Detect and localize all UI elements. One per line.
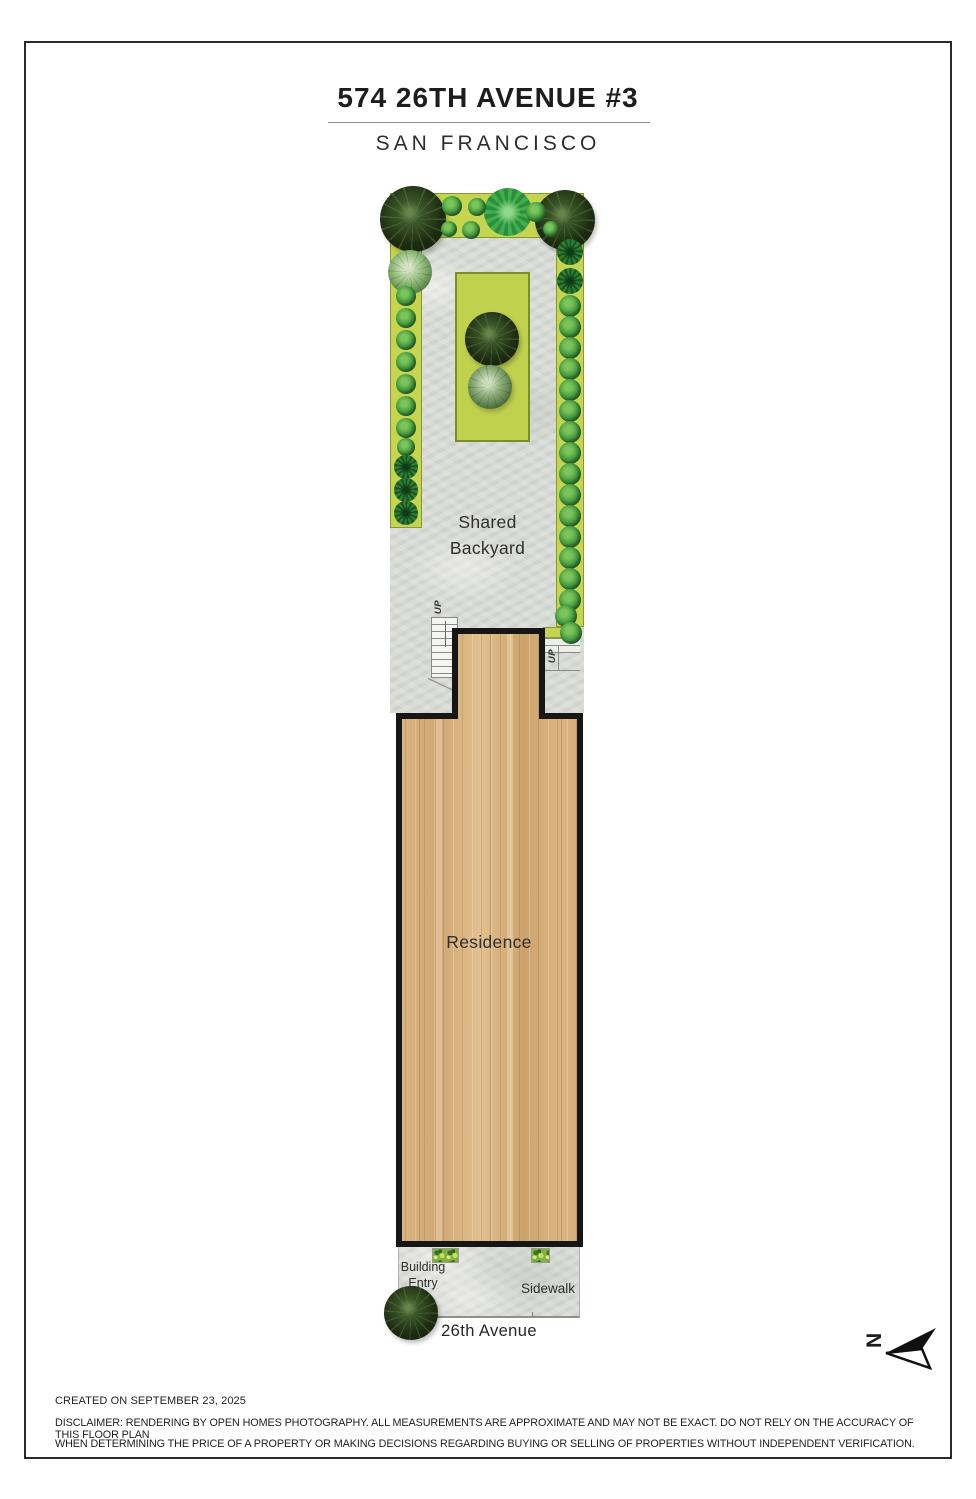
shrub-icon bbox=[396, 352, 416, 372]
shrub-icon bbox=[462, 221, 480, 239]
palm-icon bbox=[394, 478, 418, 502]
shrub-icon bbox=[397, 438, 415, 456]
backyard-label-line2: Backyard bbox=[415, 535, 560, 561]
north-arrow-icon bbox=[886, 1349, 930, 1368]
shrub-icon bbox=[468, 198, 486, 216]
shrub-icon bbox=[559, 568, 581, 590]
shrub-icon bbox=[559, 463, 581, 485]
shrub-icon bbox=[559, 442, 581, 464]
street-label: 26th Avenue bbox=[399, 1322, 579, 1341]
disclaimer-line2: WHEN DETERMINING THE PRICE OF A PROPERTY… bbox=[55, 1438, 935, 1450]
dark-tree-icon bbox=[465, 312, 519, 366]
building-entry-line1: Building bbox=[394, 1259, 452, 1275]
dark-tree-icon bbox=[380, 186, 446, 252]
shrub-icon bbox=[396, 308, 416, 328]
shrub-icon bbox=[441, 221, 457, 237]
shrub-icon bbox=[396, 418, 416, 438]
shrub-icon bbox=[559, 547, 581, 569]
shrub-icon bbox=[559, 316, 581, 338]
backyard-label-line1: Shared bbox=[415, 509, 560, 535]
shrub-icon bbox=[559, 505, 581, 527]
building-entry-line2: Entry bbox=[394, 1275, 452, 1291]
north-arrow: N bbox=[860, 1322, 948, 1374]
sage-tree-icon bbox=[468, 365, 512, 409]
palm-icon bbox=[557, 239, 583, 265]
shrub-icon bbox=[559, 295, 581, 317]
sidewalk-label: Sidewalk bbox=[513, 1281, 583, 1296]
shrub-icon bbox=[559, 379, 581, 401]
shrub-icon bbox=[559, 484, 581, 506]
shrub-icon bbox=[396, 330, 416, 350]
palm-icon bbox=[394, 455, 418, 479]
shrub-icon bbox=[559, 358, 581, 380]
plants-layer bbox=[0, 0, 976, 1499]
residence-label: Residence bbox=[400, 932, 578, 953]
site-plan: UP UP Shared Backyard Residence Building… bbox=[0, 0, 976, 1499]
succulent-icon bbox=[484, 188, 532, 236]
palm-icon bbox=[557, 268, 583, 294]
shrub-icon bbox=[396, 374, 416, 394]
created-date: CREATED ON SEPTEMBER 23, 2025 bbox=[55, 1395, 246, 1407]
backyard-label: Shared Backyard bbox=[415, 509, 560, 561]
shrub-icon bbox=[560, 622, 582, 644]
shrub-icon bbox=[396, 396, 416, 416]
shrub-icon bbox=[559, 526, 581, 548]
shrub-icon bbox=[442, 196, 462, 216]
shrub-icon bbox=[559, 421, 581, 443]
shrub-icon bbox=[396, 286, 416, 306]
north-label: N bbox=[863, 1333, 886, 1348]
building-entry-label: Building Entry bbox=[394, 1259, 452, 1291]
shrub-icon bbox=[559, 337, 581, 359]
shrub-icon bbox=[526, 202, 546, 222]
shrub-icon bbox=[559, 400, 581, 422]
shrub-icon bbox=[543, 221, 559, 237]
